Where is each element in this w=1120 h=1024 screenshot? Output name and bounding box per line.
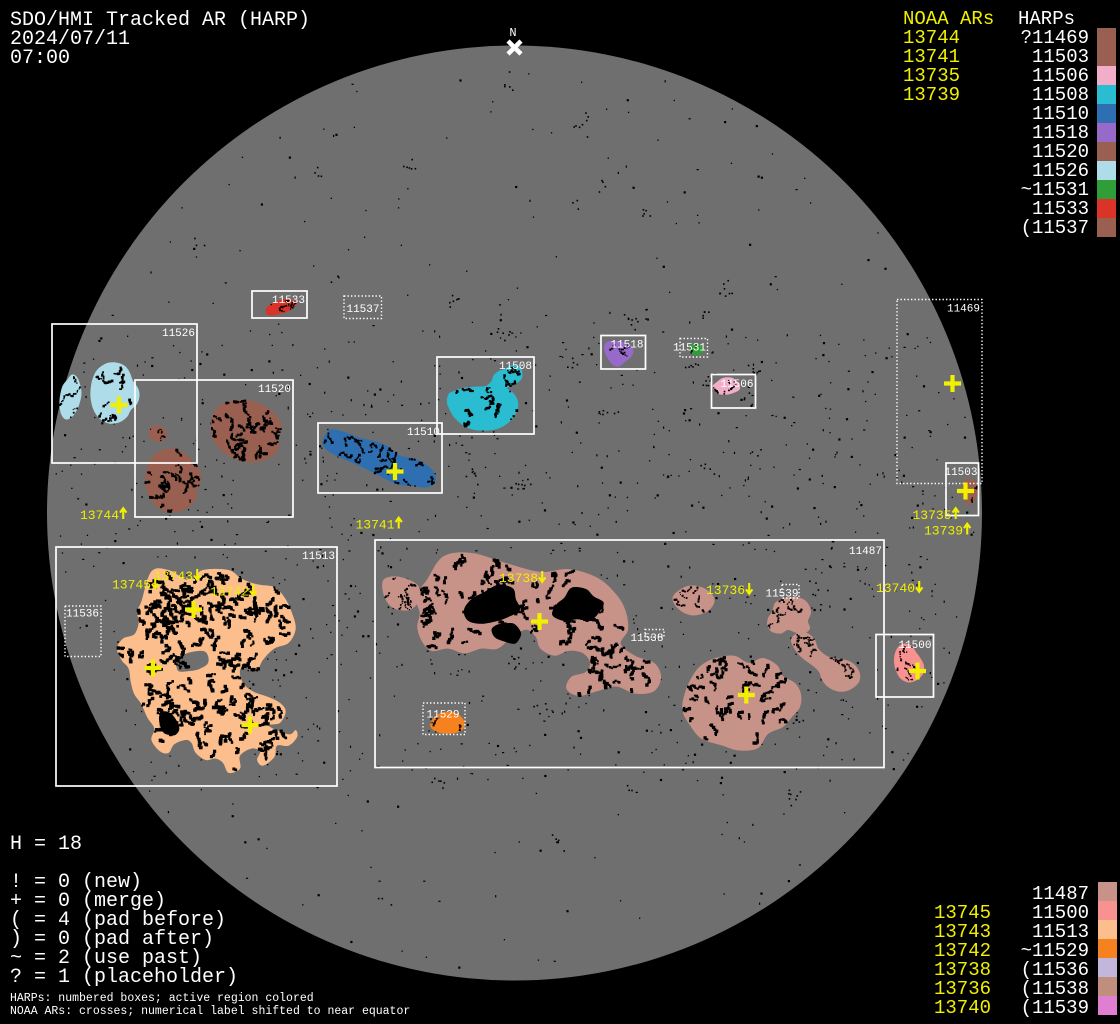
svg-text:HARPs: numbered boxes; active: HARPs: numbered boxes; active region col… — [10, 992, 314, 1005]
svg-text:11531: 11531 — [673, 343, 706, 355]
svg-text:11500: 11500 — [898, 640, 931, 652]
svg-text:NOAA ARs: crosses; numerical l: NOAA ARs: crosses; numerical label shift… — [10, 1005, 410, 1018]
svg-text:13736: 13736 — [706, 583, 745, 598]
svg-text:13740: 13740 — [934, 997, 991, 1019]
svg-text:11536: 11536 — [66, 609, 99, 621]
svg-text:13740: 13740 — [876, 581, 915, 596]
svg-text:13739: 13739 — [924, 524, 963, 539]
svg-text:13745: 13745 — [112, 578, 151, 593]
svg-text:13741: 13741 — [356, 518, 395, 533]
svg-text:07:00: 07:00 — [10, 47, 70, 70]
svg-text:11503: 11503 — [944, 467, 977, 479]
svg-text:11506: 11506 — [720, 379, 753, 391]
svg-text:H = 18: H = 18 — [10, 833, 82, 856]
svg-text:13744: 13744 — [80, 508, 119, 523]
svg-text:11539: 11539 — [765, 589, 798, 601]
svg-text:11538: 11538 — [630, 633, 663, 645]
svg-text:11518: 11518 — [610, 340, 643, 352]
svg-text:11529: 11529 — [427, 710, 460, 722]
svg-text:11520: 11520 — [258, 384, 291, 396]
svg-text:11513: 11513 — [302, 551, 335, 563]
svg-text:11469: 11469 — [947, 304, 980, 316]
svg-text:11487: 11487 — [849, 546, 882, 558]
svg-text:11510: 11510 — [407, 427, 440, 439]
svg-text:13742: 13742 — [210, 585, 249, 600]
svg-text:(11539: (11539 — [1021, 997, 1089, 1019]
svg-text:11508: 11508 — [499, 361, 532, 373]
svg-text:11533: 11533 — [272, 295, 305, 307]
svg-text:11537: 11537 — [346, 304, 379, 316]
svg-text:13735: 13735 — [913, 508, 952, 523]
svg-text:(11537: (11537 — [1021, 217, 1089, 239]
svg-text:N: N — [509, 26, 516, 40]
svg-text:? = 1 (placeholder): ? = 1 (placeholder) — [10, 966, 238, 989]
svg-text:13738: 13738 — [499, 571, 538, 586]
svg-text:11526: 11526 — [162, 328, 195, 340]
svg-text:13739: 13739 — [903, 84, 960, 106]
svg-text:13743: 13743 — [154, 569, 193, 584]
